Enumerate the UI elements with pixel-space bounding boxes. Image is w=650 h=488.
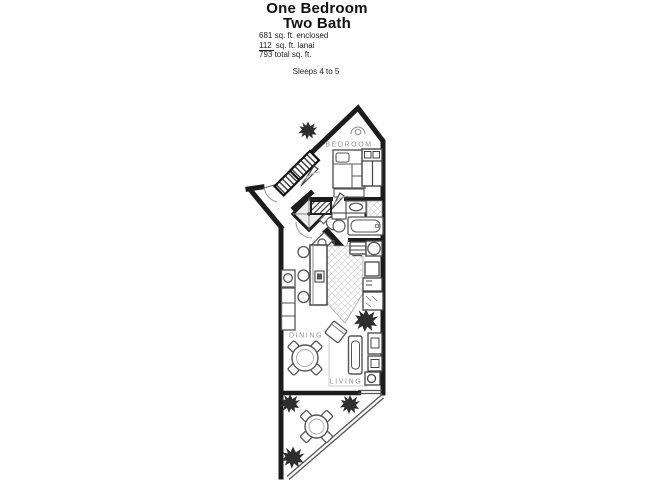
armchair: [325, 321, 348, 343]
room-label-living: LIVING: [330, 379, 363, 386]
lanai-table: [300, 410, 333, 443]
kitchen-sink: [350, 241, 382, 256]
tv-cabinet: [368, 333, 382, 371]
kitchen-appliances: [363, 262, 382, 291]
bath2-floor-tile: [367, 201, 382, 217]
lanai-slider-door: [358, 391, 382, 394]
bathtub: [348, 217, 383, 235]
entry-closet: [275, 151, 320, 195]
floor-plan-drawing: [0, 0, 650, 488]
bedroom-armoire: [362, 149, 382, 186]
wet-bar: [365, 372, 380, 385]
dining-buffet: [282, 270, 296, 330]
floor-plan-page: One Bedroom Two Bath 681 sq. ft. enclose…: [0, 0, 650, 488]
kitchen-tile-floor: [327, 246, 363, 323]
plant-icon: [340, 395, 360, 414]
room-label-dining: DINING: [289, 333, 323, 340]
room-label-bedroom: BEDROOM: [325, 142, 372, 149]
dining-table: [287, 340, 322, 375]
plant-icon: [354, 309, 378, 332]
bedroom-ceiling-fan: [351, 127, 365, 135]
kitchen-counter: [310, 245, 327, 305]
bath2-toilet: [332, 213, 346, 232]
linen-closet: [311, 201, 331, 214]
plant-icon: [299, 121, 318, 139]
sofa: [349, 336, 363, 374]
kitchen-fridge: [363, 292, 383, 310]
kitchen-stools: [298, 247, 309, 303]
bedroom-bed: [333, 150, 365, 197]
bath2-sink: [346, 201, 366, 213]
